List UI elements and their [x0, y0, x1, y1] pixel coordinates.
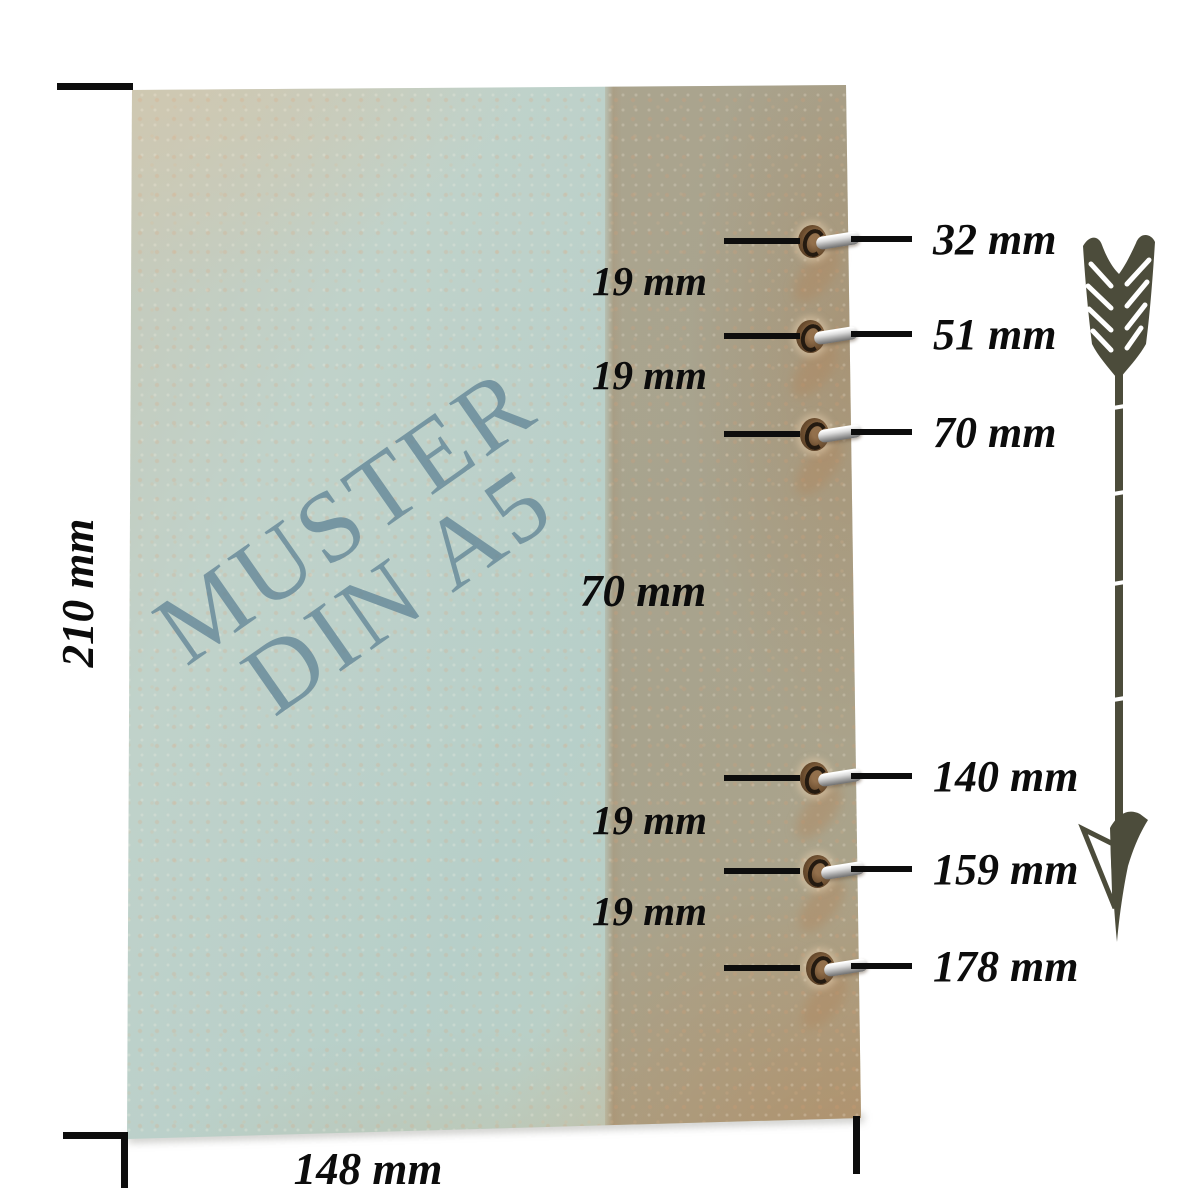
diagram-canvas: MUSTER DIN A5 210 mm 148 mm 32 mm 19 mm … — [0, 0, 1200, 1200]
down-arrow-icon — [1070, 232, 1170, 952]
dimension-line-outer — [851, 866, 912, 872]
dimension-line-inner — [724, 868, 800, 874]
dimension-line-inner — [724, 965, 800, 971]
dimension-line-inner — [724, 431, 800, 437]
gap-distance-label: 70 mm — [580, 565, 706, 617]
dimension-line-inner — [724, 775, 800, 781]
gap-distance-label: 19 mm — [592, 351, 707, 399]
dimension-line-inner — [724, 333, 800, 339]
gap-distance-label: 19 mm — [592, 887, 707, 935]
dimension-line-outer — [851, 331, 912, 337]
hole-distance-label: 159 mm — [933, 844, 1078, 895]
gap-distance-label: 19 mm — [592, 796, 707, 844]
hole-distance-label: 51 mm — [933, 309, 1056, 360]
dimension-line-outer — [851, 963, 912, 969]
height-dimension-label: 210 mm — [52, 519, 104, 668]
bottom-right-tick — [853, 1116, 860, 1174]
bottom-left-corner-tick-v — [121, 1132, 128, 1188]
hole-distance-label: 178 mm — [933, 941, 1078, 992]
hole-distance-label: 32 mm — [933, 214, 1056, 265]
dimension-line-outer — [851, 429, 912, 435]
hole-distance-label: 140 mm — [933, 751, 1078, 802]
width-dimension-label: 148 mm — [294, 1143, 443, 1195]
hole-distance-label: 70 mm — [933, 407, 1056, 458]
top-left-tick — [57, 83, 133, 90]
gap-distance-label: 19 mm — [592, 257, 707, 305]
bottom-left-corner-tick-h — [63, 1132, 127, 1139]
dimension-line-outer — [851, 236, 912, 242]
dimension-line-outer — [851, 773, 912, 779]
dimension-line-inner — [724, 238, 800, 244]
